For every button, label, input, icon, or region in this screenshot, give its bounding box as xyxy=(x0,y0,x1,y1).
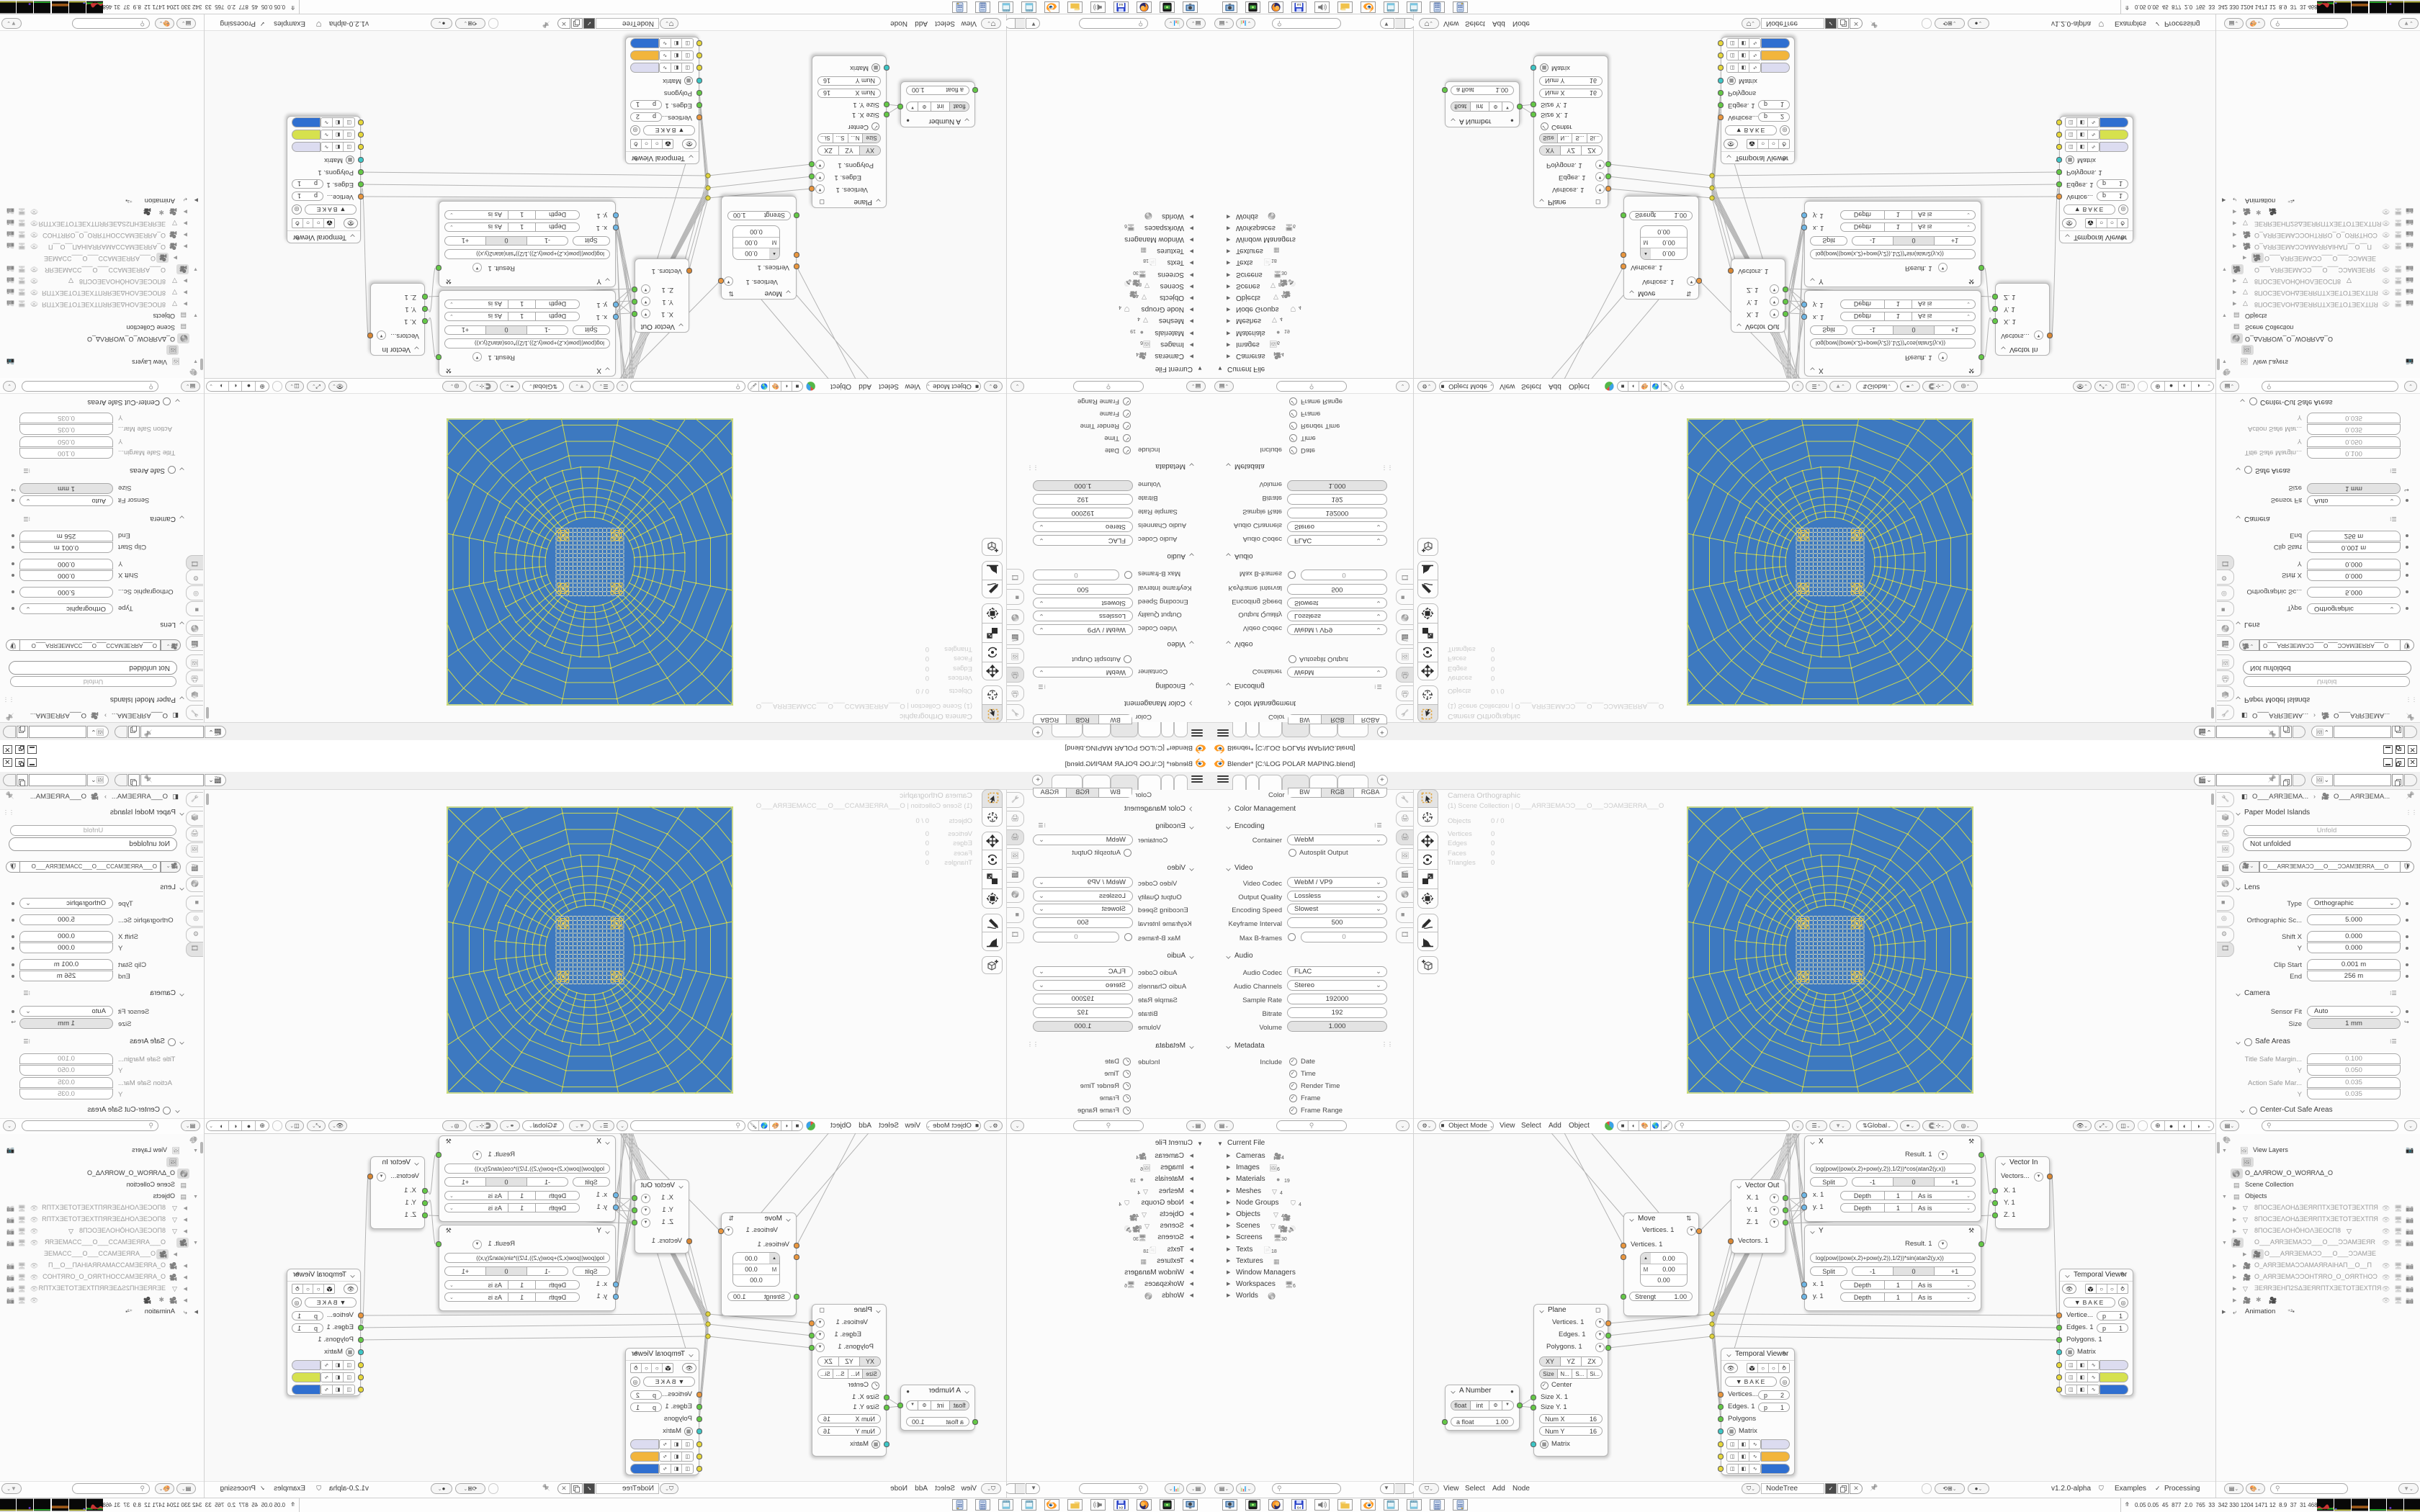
svg-text:64: 64 xyxy=(1297,1506,1301,1510)
svg-text:64: 64 xyxy=(1119,2,1124,6)
svg-text:64: 64 xyxy=(1297,2,1301,6)
svg-text:64: 64 xyxy=(1119,1506,1124,1510)
